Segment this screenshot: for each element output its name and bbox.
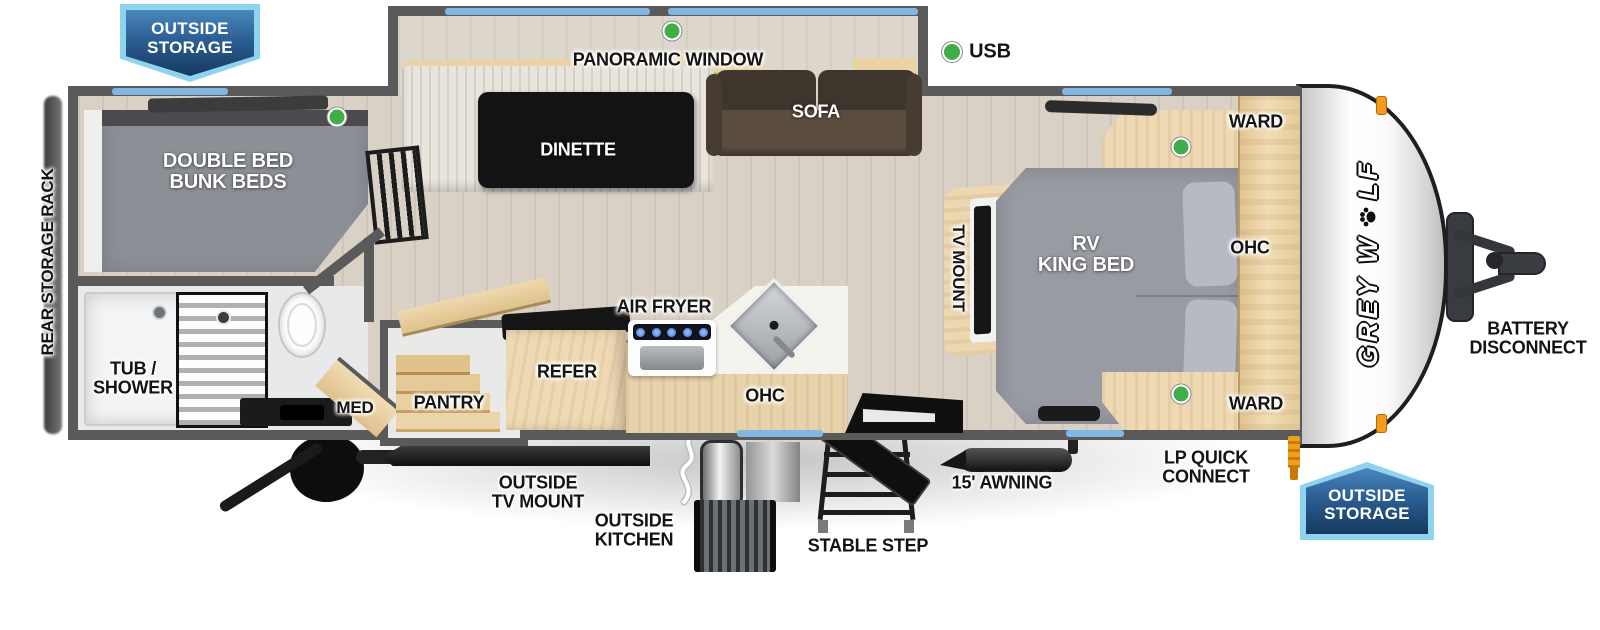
ladder-foot bbox=[904, 520, 914, 533]
panoramic-window-label: PANORAMIC WINDOW bbox=[573, 51, 763, 70]
bunk-mattress-side bbox=[84, 110, 104, 272]
tv-mount-label: TV MOUNT bbox=[949, 224, 967, 311]
battery-disconnect-label: BATTERYDISCONNECT bbox=[1469, 319, 1586, 356]
outside-kitchen-box bbox=[746, 442, 800, 502]
med-label: MED bbox=[336, 399, 373, 417]
usb-dot bbox=[328, 108, 347, 127]
nightstand bbox=[1102, 372, 1240, 430]
brand-text-suffix: LF bbox=[1353, 159, 1384, 200]
hitch-joint bbox=[1486, 252, 1503, 269]
outside-tv-mount-bar bbox=[382, 446, 650, 466]
rear-storage-rack-label: REAR STORAGE RACK bbox=[39, 168, 57, 355]
usb-dot bbox=[663, 22, 682, 41]
lp-quick-connect-label: LP QUICKCONNECT bbox=[1162, 448, 1250, 485]
sofa-armrest bbox=[906, 74, 922, 156]
bedroom-ohc-label: OHC bbox=[1230, 239, 1269, 258]
mattress-seam bbox=[1136, 295, 1242, 297]
vanity-sink bbox=[280, 405, 324, 420]
paw-icon bbox=[1357, 206, 1379, 228]
shower-head bbox=[216, 310, 231, 325]
nightstand bbox=[1102, 110, 1240, 168]
usb-dot bbox=[1172, 385, 1191, 404]
sofa-armrest bbox=[706, 74, 722, 156]
badge-line: STORAGE bbox=[147, 39, 233, 58]
ladder-rung bbox=[821, 510, 913, 515]
burner-strip bbox=[633, 324, 711, 340]
stable-step-ladder bbox=[818, 436, 916, 528]
refer-label: REFER bbox=[537, 363, 597, 382]
step bbox=[396, 374, 480, 394]
stable-step-label: STABLE STEP bbox=[808, 537, 928, 556]
griddle bbox=[694, 500, 776, 572]
brand-logo: GREY W LF bbox=[1347, 118, 1389, 408]
bathroom-wall bbox=[68, 276, 334, 286]
air-fryer-label: AIR FRYER bbox=[617, 298, 712, 317]
water-jug bbox=[700, 440, 743, 508]
pillow bbox=[1182, 181, 1238, 287]
toilet bbox=[278, 292, 326, 358]
griddle-plate bbox=[640, 346, 704, 370]
step bbox=[396, 412, 500, 432]
step bbox=[396, 355, 470, 375]
window bbox=[668, 8, 918, 15]
pantry-label: PANTRY bbox=[414, 394, 485, 413]
ward-bottom-label: WARD bbox=[1229, 395, 1283, 414]
hitch-coupler bbox=[1498, 252, 1546, 275]
ladder-foot bbox=[818, 520, 828, 533]
outside-tv-mount-label: OUTSIDETV MOUNT bbox=[492, 473, 584, 510]
window bbox=[1066, 430, 1124, 437]
outside-kitchen-label: OUTSIDEKITCHEN bbox=[595, 511, 674, 548]
lp-quick-connect-tip bbox=[1290, 466, 1298, 480]
sink-drain bbox=[768, 319, 781, 332]
tub-shower-label: TUB /SHOWER bbox=[93, 359, 173, 396]
usb-legend-label: USB bbox=[969, 42, 1011, 63]
bunk-label: DOUBLE BEDBUNK BEDS bbox=[163, 151, 293, 193]
shower-head bbox=[152, 305, 167, 320]
usb-dot-legend bbox=[942, 42, 962, 62]
air-fryer-range bbox=[628, 320, 716, 376]
lp-quick-connect-fitting bbox=[1288, 436, 1300, 468]
entry-door bbox=[845, 393, 963, 433]
badge-line: STORAGE bbox=[1324, 505, 1410, 524]
ward-top-label: WARD bbox=[1229, 113, 1283, 132]
kitchen-ohc-label: OHC bbox=[745, 387, 784, 406]
entry-step bbox=[863, 409, 935, 422]
window bbox=[112, 88, 228, 95]
toilet-seat-ring bbox=[287, 303, 317, 347]
usb-dot bbox=[1172, 138, 1191, 157]
dinette-label: DINETTE bbox=[540, 141, 616, 160]
clearance-light bbox=[1376, 414, 1387, 433]
awning-roll bbox=[960, 448, 1072, 472]
sofa-label: SOFA bbox=[792, 103, 840, 122]
hitch-crossbar bbox=[1446, 212, 1474, 322]
floorplan-canvas: GREY W LF bbox=[0, 0, 1600, 630]
king-bed-label: RVKING BED bbox=[1038, 234, 1134, 276]
outside-storage-badge-top: OUTSIDE STORAGE bbox=[120, 4, 260, 82]
badge-line: OUTSIDE bbox=[151, 20, 229, 39]
clearance-light bbox=[1376, 96, 1387, 115]
tv-bar bbox=[974, 205, 991, 334]
wardrobe-wall bbox=[1238, 96, 1300, 430]
window bbox=[445, 8, 650, 15]
pantry-steps bbox=[396, 352, 506, 430]
window bbox=[737, 430, 823, 437]
tv-bracket-bar bbox=[1038, 406, 1100, 421]
ladder-rail bbox=[818, 436, 832, 520]
window bbox=[1062, 88, 1172, 95]
brand-text-prefix: GREY W bbox=[1353, 234, 1384, 367]
badge-line: OUTSIDE bbox=[1328, 487, 1406, 506]
awning-label: 15' AWNING bbox=[952, 474, 1053, 493]
bathroom-wall-vertical bbox=[364, 238, 374, 322]
